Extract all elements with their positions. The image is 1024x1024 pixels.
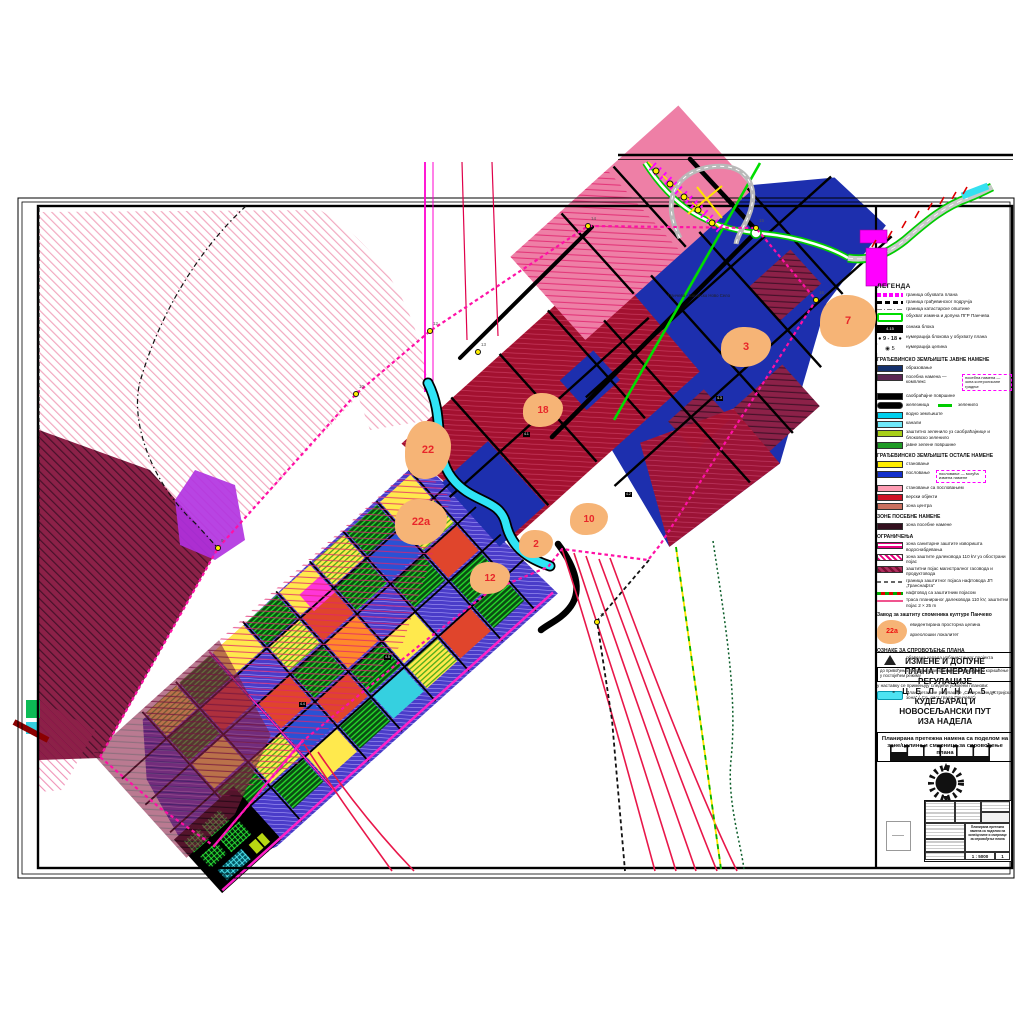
- legend-item: образовање: [877, 365, 1012, 373]
- block-tag: 4.2: [625, 492, 632, 497]
- legend-swatch-sw-black: [877, 393, 903, 400]
- legend-swatch-line-pink: [877, 600, 903, 602]
- boundary-vertex-number: 15: [759, 218, 764, 223]
- legend-item: ◉ 5нумерација целина: [877, 344, 1012, 353]
- plan-title-line: КУДЕЉАРАЦ И: [877, 697, 1013, 707]
- legend-note: посебна намена — зона контролисане градњ…: [962, 374, 1012, 391]
- boundary-vertex: [475, 349, 481, 355]
- block-tag: 4.4: [299, 702, 306, 707]
- legend-groups: ЛЕГЕНДАграница обухвата планаграница гра…: [877, 283, 1012, 608]
- legend-label: заштитно зеленило уз саобраћајнице и бло…: [906, 429, 1012, 440]
- top-vertical-lines: [425, 162, 498, 396]
- legend-swatch-line-gray-dashdot: [877, 309, 903, 311]
- legend-label: нумерација целина: [906, 344, 947, 349]
- table-subtitle-cell: Планирана претежна намена са поделом на …: [965, 823, 1010, 852]
- legend-swatch-sw-yellowgreen: [877, 430, 903, 437]
- legend-header: ЗОНЕ ПОСЕБНЕ НАМЕНЕ: [877, 514, 1012, 520]
- legend-label: граница обухвата плана: [906, 292, 958, 297]
- heritage-header: Завод за заштиту споменика културе Панче…: [877, 612, 1012, 618]
- heritage-section: Завод за заштиту споменика културе Панче…: [877, 612, 1012, 644]
- legend-swatch-sw-blue: [877, 471, 903, 478]
- boundary-vertex-number: 14: [591, 216, 596, 221]
- legend-label: железница: [906, 402, 929, 407]
- legend-label: становање: [906, 461, 929, 466]
- legend-label: саобраћајне површине: [906, 393, 955, 398]
- legend-swatch-hatch-magenta: [877, 542, 903, 549]
- legend-header: ОГРАНИЧЕЊА: [877, 534, 1012, 540]
- plan-title-line: ИЗА НАДЕЛА: [877, 717, 1013, 727]
- legend-label: јавне зелене површине: [906, 442, 956, 447]
- legend-swatch-sw-darkmaroon: [877, 523, 903, 530]
- boundary-vertex: [594, 619, 600, 625]
- boundary-vertex: [753, 225, 759, 231]
- legend-swatch-line-oil: [877, 592, 903, 595]
- legend-label: зона центра: [906, 503, 932, 508]
- boundary-vertex-number: 9: [221, 538, 224, 543]
- heritage-label: археолошки локалитет: [910, 632, 980, 637]
- heritage-row: 22аевидентирана просторна целинаархеолош…: [877, 620, 1012, 644]
- legend-item: саобраћајне површине: [877, 393, 1012, 401]
- legend-label: пословање: [906, 470, 930, 475]
- legend-item: заштитни појас магистралног гасовода и п…: [877, 566, 1012, 577]
- legend-swatch-sw-purple: [877, 374, 903, 381]
- legend-swatch-sw-green: [877, 442, 903, 449]
- legend-item: верски објекти: [877, 494, 1012, 502]
- legend-item: пословањепословање — могућа измена намен…: [877, 470, 1012, 483]
- legend-label: зона заштите далековода 110 kV уз обостр…: [906, 554, 1012, 565]
- legend-item: зона заштите далековода 110 kV уз обостр…: [877, 554, 1012, 565]
- boundary-vertex: [585, 223, 591, 229]
- plan-map: [0, 0, 1024, 1024]
- legend-swatch-blocks-range: ● 9 - 18 ●: [877, 335, 903, 343]
- legend-label: граница заштитног појаса нафтовода ЈП „Т…: [906, 578, 1012, 589]
- table-scale-cell: 1 : 5000: [965, 852, 995, 860]
- legend-item: нафтовод са заштитним појасом: [877, 590, 1012, 595]
- legend-swatch-sw-salmon: [877, 503, 903, 510]
- legend-item: ● 9 - 18 ●нумерација блокова у обухвату …: [877, 334, 1012, 343]
- legend-label: ознака блока: [906, 324, 934, 329]
- legend-item: канали: [877, 420, 1012, 428]
- legend-label: нафтовод са заштитним појасом: [906, 590, 976, 595]
- legend-label: посебна намена — комплекс: [906, 374, 956, 385]
- boundary-vertex: [215, 545, 221, 551]
- legend-item: граница катастарске општине: [877, 306, 1012, 311]
- legend-swatch-sw-rail: [877, 402, 903, 409]
- boundary-vertex: [353, 391, 359, 397]
- boundary-vertex: [427, 328, 433, 334]
- table-sheet-number-cell: 1: [995, 852, 1010, 860]
- legend-item: зона центра: [877, 503, 1012, 511]
- legend-swatch-circle-num: ◉ 5: [877, 345, 903, 353]
- legend-label: нумерација блокова у обухвату плана: [906, 334, 987, 339]
- legend-item: железницазеленило: [877, 402, 1012, 410]
- legend-label: канали: [906, 420, 921, 425]
- plan-title-line: - Ц Е Л И Н А 5 -: [877, 687, 1013, 697]
- legend-item: 4.15ознака блока: [877, 324, 1012, 333]
- legend-swatch-sw-lightcyan: [877, 421, 903, 428]
- legend-item: заштитно зеленило уз саобраћајнице и бло…: [877, 429, 1012, 440]
- boundary-vertex-number: 12: [433, 321, 438, 326]
- legend-item: зона посебне намене: [877, 522, 1012, 530]
- legend-label: граница катастарске општине: [906, 306, 970, 311]
- legend-label: зона посебне намене: [906, 522, 952, 527]
- legend-swatch-sw-navy: [877, 365, 903, 372]
- boundary-vertex: [813, 297, 819, 303]
- revision-box: [886, 821, 911, 851]
- boundary-vertex-number: 16: [819, 290, 824, 295]
- legend-item: водно земљиште: [877, 411, 1012, 419]
- drawing-title-table: Планирана претежна намена са поделом на …: [924, 800, 1012, 862]
- heritage-zone-badge: 22а: [877, 620, 907, 644]
- legend-swatch-sw-yellow: [877, 461, 903, 468]
- green-line-swatch: [938, 404, 952, 407]
- legend-label: образовање: [906, 365, 932, 370]
- block-tag: 4.3: [716, 396, 723, 401]
- legend-swatch-hatch-magenta2: [877, 554, 903, 561]
- legend-label: траса планираног далековода 110 kV, зашт…: [906, 597, 1012, 608]
- legend-label: обухват измена и допуна ПГР Панчева: [906, 313, 989, 318]
- legend-label: становање са пословањем: [906, 485, 964, 490]
- boundary-vertex-number: 10: [359, 384, 364, 389]
- legend-item: становање: [877, 461, 1012, 469]
- boundary-vertex-number: 13: [481, 342, 486, 347]
- legend-label: зеленило: [958, 402, 978, 407]
- road-name-label: Панчево - Банатско Ново Село: [668, 293, 778, 298]
- plan-title-line: ПЛАНА ГЕНЕРАЛНЕ РЕГУЛАЦИЈЕ: [877, 667, 1013, 687]
- legend-swatch-outline-green: [877, 313, 903, 322]
- legend-label: граница грађевинског подручја: [906, 299, 972, 304]
- legend-item: посебна намена — комплекспосебна намена …: [877, 374, 1012, 391]
- legend-note: пословање — могућа измена намене: [936, 470, 986, 483]
- legend-item: граница заштитног појаса нафтовода ЈП „Т…: [877, 578, 1012, 589]
- plan-title-line: НОВОСЕЉАНСКИ ПУТ: [877, 707, 1013, 717]
- plan-title-line: ИЗМЕНЕ И ДОПУНЕ: [877, 657, 1013, 667]
- legend-label: зона санитарне заштите изворишта водосна…: [906, 541, 1012, 552]
- legend-item: становање са пословањем: [877, 485, 1012, 493]
- legend-swatch-hatch-maroon: [877, 566, 903, 573]
- legend-header: ГРАЂЕВИНСКО ЗЕМЉИШТЕ ОСТАЛЕ НАМЕНЕ: [877, 453, 1012, 459]
- legend-item: зона санитарне заштите изворишта водосна…: [877, 541, 1012, 552]
- legend-label: водно земљиште: [906, 411, 943, 416]
- legend-swatch-sw-pink: [877, 485, 903, 492]
- block-tag: 4.5: [384, 655, 391, 660]
- heritage-label: евидентирана просторна целина: [910, 622, 980, 627]
- boundary-vertex-number: 11: [600, 612, 605, 617]
- block-tag: 4.1: [523, 432, 530, 437]
- legend-panel: ЛЕГЕНДАграница обухвата планаграница гра…: [877, 283, 1012, 702]
- legend-swatch-sw-cyan: [877, 412, 903, 419]
- legend-item: траса планираног далековода 110 kV, зашт…: [877, 597, 1012, 608]
- legend-header: ЛЕГЕНДА: [877, 283, 1012, 290]
- legend-label: заштитни појас магистралног гасовода и п…: [906, 566, 1012, 577]
- north-arrow-compass: [925, 762, 967, 804]
- legend-header: ГРАЂЕВИНСКО ЗЕМЉИШТЕ ЈАВНЕ НАМЕНЕ: [877, 357, 1012, 363]
- heritage-labels: евидентирана просторна целинаархеолошки …: [910, 620, 980, 638]
- legend-swatch-black-tag: 4.15: [877, 325, 903, 333]
- plan-title: ИЗМЕНЕ И ДОПУНЕПЛАНА ГЕНЕРАЛНЕ РЕГУЛАЦИЈ…: [877, 657, 1013, 727]
- legend-item: јавне зелене површине: [877, 442, 1012, 450]
- legend-label: верски објекти: [906, 494, 937, 499]
- legend-swatch-line-black-dash: [877, 301, 903, 304]
- legend-swatch-line-magenta-dash: [877, 293, 903, 297]
- legend-swatch-sw-red: [877, 494, 903, 501]
- legend-swatch-line-gray-dash: [877, 581, 903, 583]
- legend-item: граница грађевинског подручја: [877, 299, 1012, 304]
- legend-item: граница обухвата плана: [877, 292, 1012, 297]
- legend-item: обухват измена и допуна ПГР Панчева: [877, 313, 1012, 323]
